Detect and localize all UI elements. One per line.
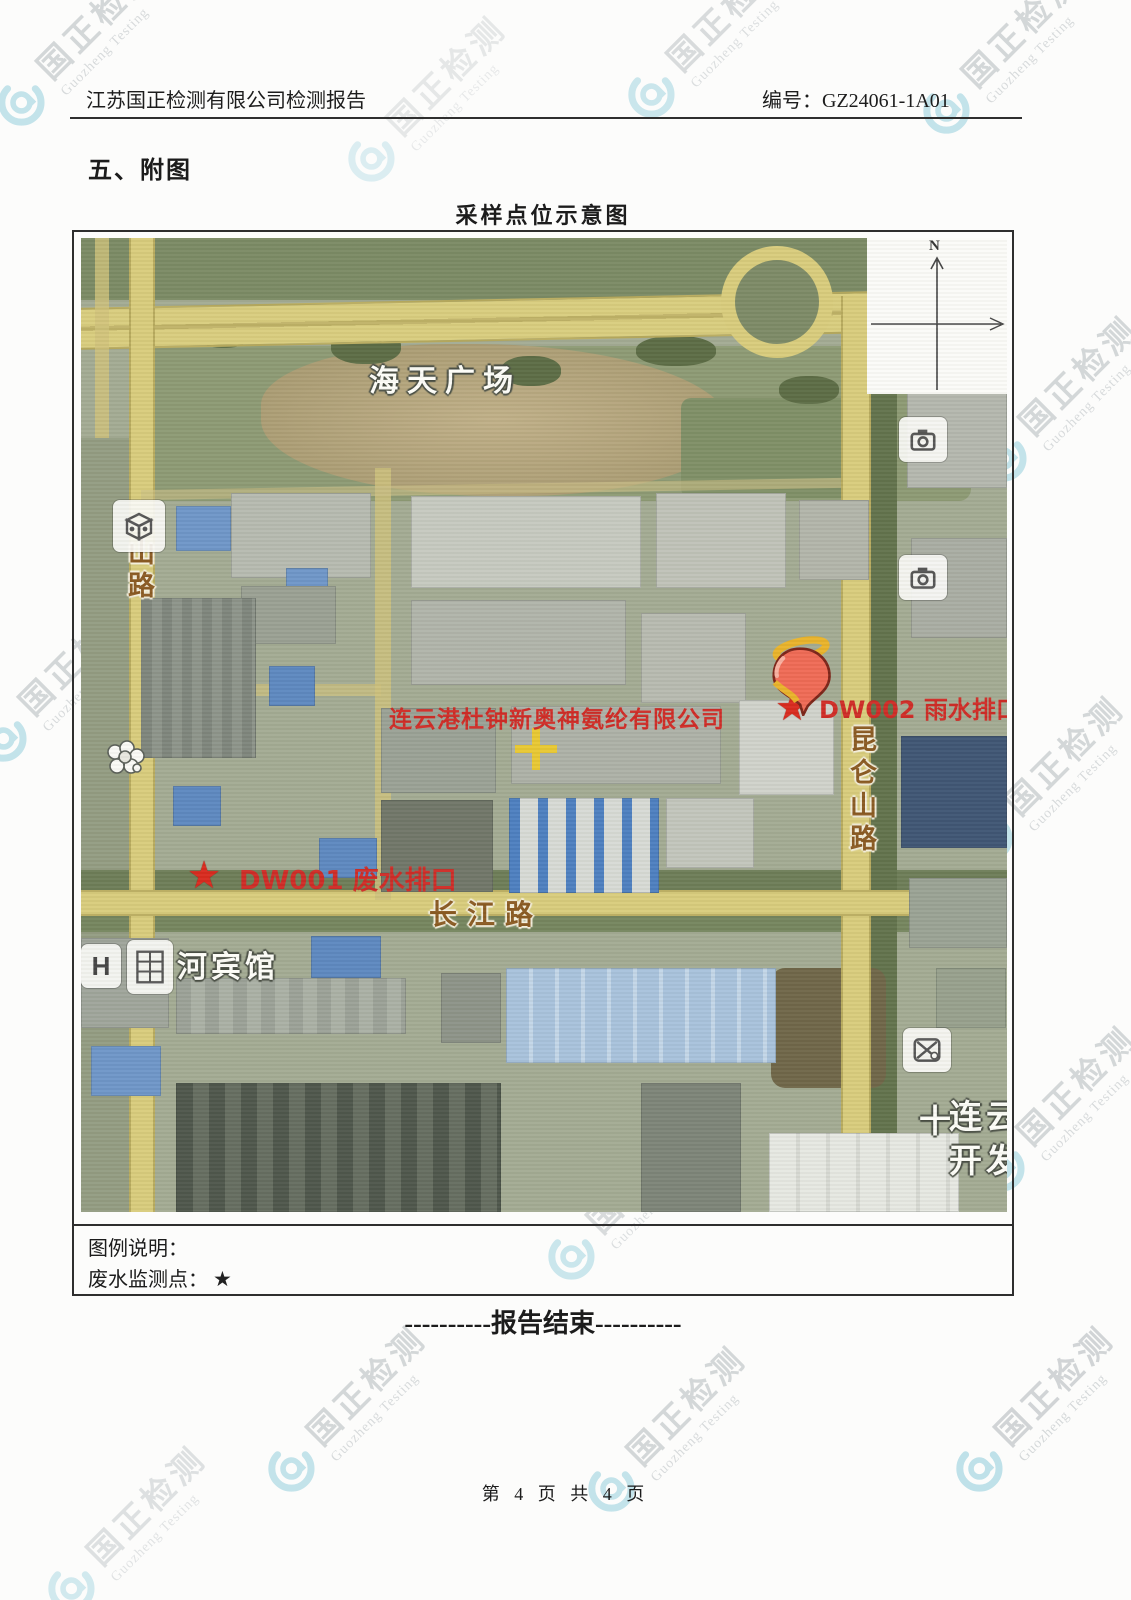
map-building xyxy=(641,1083,741,1212)
report-header-title: 江苏国正检测有限公司检测报告 xyxy=(86,84,366,113)
map-building-blue-roof xyxy=(506,968,776,1063)
map-building xyxy=(411,496,641,588)
guozheng-logo-icon xyxy=(0,699,43,778)
report-page: 国正检测Guozheng Testing 国正检测Guozheng Testin… xyxy=(0,0,1131,1600)
map-building xyxy=(441,973,501,1043)
company-name-label: 连云港杜钟新奥神氨纶有限公司 xyxy=(389,700,725,734)
map-building xyxy=(666,798,754,868)
camera-icon xyxy=(899,555,947,600)
legend-item-label: 废水监测点： xyxy=(88,1269,208,1291)
legend-heading: 图例说明： xyxy=(88,1234,1012,1264)
district-label-line1: 连云 xyxy=(949,1090,1007,1138)
map-building-blue xyxy=(176,506,231,551)
watermark: 国正检测Guozheng Testing xyxy=(0,0,177,145)
map-building xyxy=(799,500,869,580)
legend-star-symbol: ★ xyxy=(213,1267,232,1291)
guozheng-logo-icon xyxy=(332,119,411,198)
compass: N xyxy=(867,238,1007,394)
map-building xyxy=(641,613,746,703)
map-building-white xyxy=(769,1133,959,1212)
map-building-blue xyxy=(173,786,221,826)
district-cross-icon: 十 xyxy=(919,1096,951,1142)
crossed-box-icon xyxy=(903,1028,951,1072)
map-industrial-block xyxy=(141,598,256,758)
section-title: 五、附图 xyxy=(88,150,192,185)
map-building-blue xyxy=(91,1046,161,1096)
map-building-striped xyxy=(509,798,659,893)
road-label-kunlunshan: 昆仑山路 xyxy=(841,725,880,857)
satellite-map: 海天广场 山路 昆仑山路 长江路 H 河宾馆 十 连云 开发 连云港杜钟新奥神氨… xyxy=(81,238,1007,1212)
dw002-label: DW002 雨水排口 xyxy=(819,690,1007,725)
map-building xyxy=(909,878,1007,948)
compass-north-label: N xyxy=(929,238,940,255)
hotel-icon: H xyxy=(81,944,121,988)
plaza-label: 海天广场 xyxy=(369,356,521,400)
page-number: 第 4 页 共 4 页 xyxy=(0,1480,1131,1506)
hotel-label: 河宾馆 xyxy=(177,942,279,986)
camera-icon xyxy=(899,417,947,462)
legend: 图例说明： 废水监测点： ★ xyxy=(74,1224,1012,1294)
guozheng-logo-icon xyxy=(0,63,61,142)
map-warehouse xyxy=(176,978,406,1034)
map-building-blue xyxy=(311,936,381,978)
legend-item: 废水监测点： ★ xyxy=(88,1264,1012,1296)
grid-poi-icon xyxy=(127,940,173,994)
map-roundabout xyxy=(721,246,833,358)
dw001-label: DW001 废水排口 xyxy=(239,860,457,897)
balloon-pin-icon xyxy=(761,636,837,720)
map-building xyxy=(656,493,786,588)
flower-icon xyxy=(99,738,151,782)
figure-box: 海天广场 山路 昆仑山路 长江路 H 河宾馆 十 连云 开发 连云港杜钟新奥神氨… xyxy=(72,230,1014,1296)
report-number: 编号：GZ24061-1A01 xyxy=(762,84,950,113)
dw001-star-marker: ★ xyxy=(187,856,221,894)
watermark: 国正检测Guozheng Testing xyxy=(904,0,1102,153)
road-label-changjiang: 长江路 xyxy=(429,893,543,933)
figure-title: 采样点位示意图 xyxy=(72,198,1014,230)
map-tree xyxy=(636,336,716,366)
map-building xyxy=(411,600,626,685)
map-road-ramp xyxy=(95,238,109,438)
compass-axes-icon xyxy=(867,238,1007,394)
map-building-dark xyxy=(901,736,1007,848)
map-building xyxy=(936,968,1006,1028)
guozheng-logo-icon xyxy=(612,55,691,134)
map-building xyxy=(231,493,371,578)
header-rule xyxy=(70,117,1022,119)
map-tree xyxy=(779,376,839,404)
district-label-line2: 开发 xyxy=(949,1134,1007,1182)
watermark: 国正检测Guozheng Testing xyxy=(29,1433,227,1600)
map-building-blue xyxy=(269,666,315,706)
report-end-text: ----------报告结束---------- xyxy=(72,1303,1014,1340)
cube-poi-icon xyxy=(113,500,165,552)
guozheng-logo-icon xyxy=(32,1549,111,1600)
map-warehouse-dark xyxy=(176,1083,501,1212)
